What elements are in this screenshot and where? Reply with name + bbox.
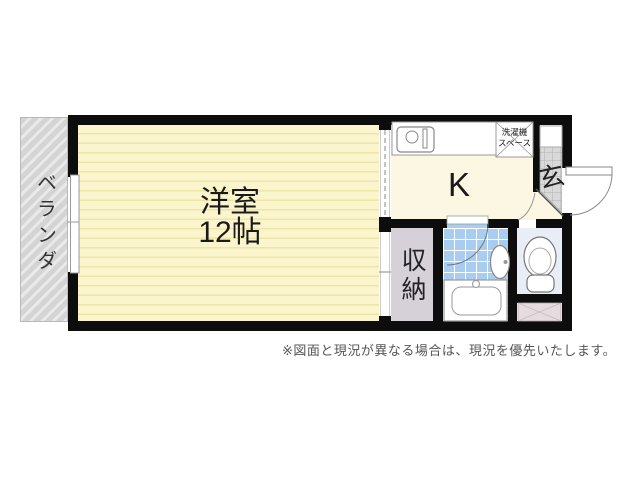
storage-door — [379, 232, 391, 316]
entry-door — [562, 167, 612, 215]
main-room-size-label: 12帖 — [150, 218, 310, 248]
veranda-label: ベランダ — [23, 162, 67, 286]
floor-plan-canvas: ベランダ 洋室 12帖 K 洗濯機 スペース 玄 収納 ※図面と現況が異なる場合… — [0, 0, 640, 480]
bathroom-door — [447, 216, 488, 265]
fixtures-overlay — [0, 0, 640, 480]
washer-space-label-line1: 洗濯機 — [495, 127, 534, 138]
window — [67, 175, 79, 273]
kitchen-label: K — [448, 166, 470, 204]
main-room-name-label: 洋室 — [150, 188, 310, 218]
storage-label: 収納 — [391, 238, 433, 314]
kitchen-sink-icon — [392, 122, 498, 155]
sliding-door — [381, 130, 390, 217]
washbasin-icon — [491, 246, 510, 279]
toilet-door-arc — [518, 193, 535, 220]
disclaimer-footnote: ※図面と現況が異なる場合は、現況を優先いたします。 — [282, 340, 616, 359]
toilet-icon — [524, 237, 556, 292]
bathtub-icon — [444, 280, 507, 321]
washer-space-label-line2: スペース — [495, 138, 534, 149]
pipe-space-box — [518, 303, 561, 321]
shoe-cabinet — [540, 126, 562, 147]
